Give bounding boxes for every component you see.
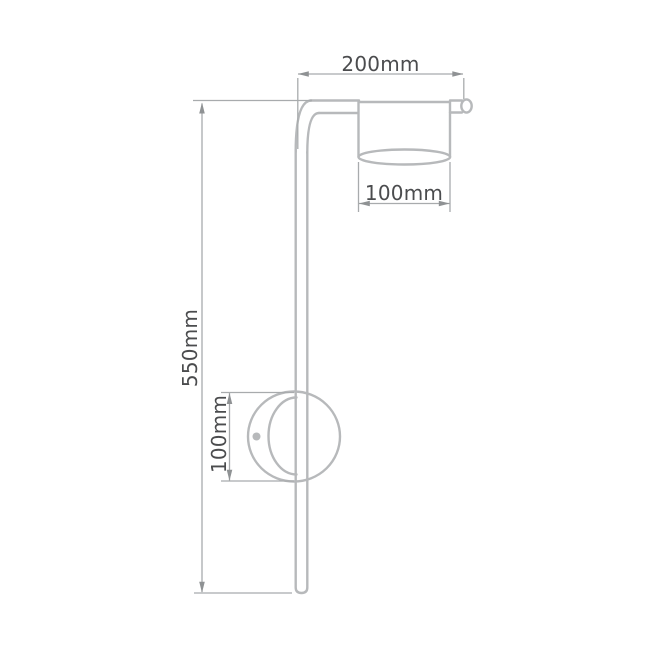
label-shade-diameter: 100mm: [365, 181, 443, 205]
mount-outer-circle: [248, 392, 340, 482]
arrow-left-200-icon: [298, 71, 309, 77]
mount-screw-dot: [253, 433, 261, 441]
tube-end-cap: [461, 99, 471, 112]
dimension-lines-group: [193, 74, 464, 593]
mount-inner-arc: [269, 398, 297, 475]
dimension-labels-group: 200mm 550mm 100mm 100mm: [178, 52, 443, 473]
label-total-height: 550mm: [178, 309, 202, 387]
arm-bend-inner: [307, 113, 319, 153]
label-mount-diameter: 100mm: [207, 395, 231, 473]
drawing-canvas: 200mm 550mm 100mm 100mm: [0, 0, 650, 650]
arrow-up-550-icon: [199, 103, 205, 114]
lamp-outline-group: [248, 99, 472, 593]
label-arm-reach: 200mm: [341, 52, 419, 76]
arrow-right-200-icon: [452, 71, 463, 77]
pole-outline: [296, 150, 308, 593]
arrow-down-550-icon: [199, 582, 205, 593]
lamp-technical-drawing: 200mm 550mm 100mm 100mm: [0, 0, 650, 650]
shade-bottom-ellipse: [359, 150, 451, 165]
